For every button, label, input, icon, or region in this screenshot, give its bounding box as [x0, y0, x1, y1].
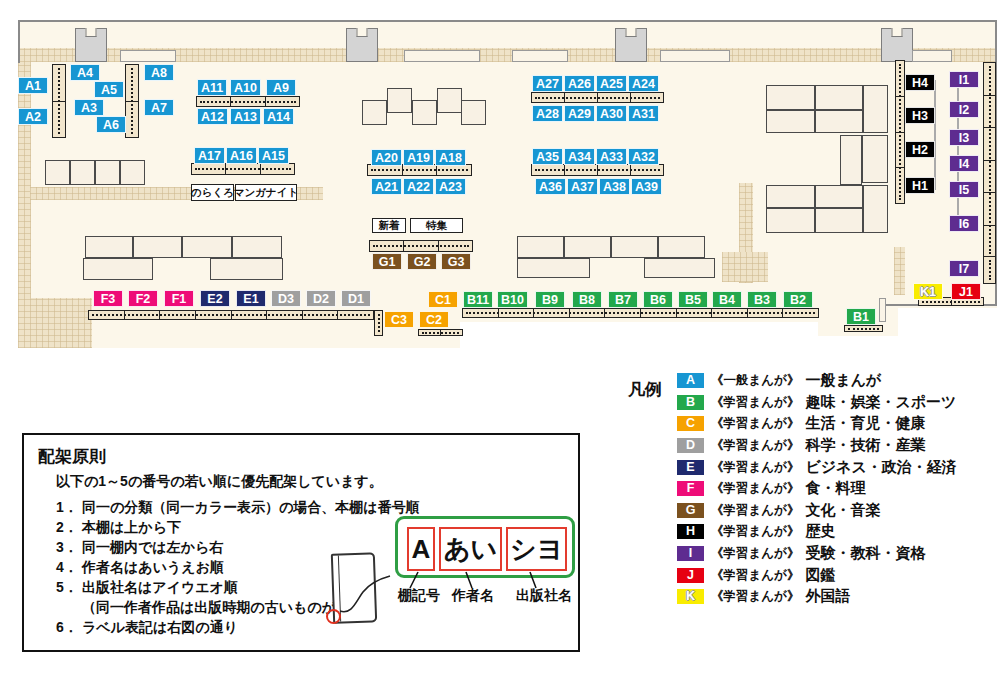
- area-label-manga-night: マンガナイト: [235, 184, 297, 201]
- legend-type: 《学習まんが》: [711, 437, 799, 454]
- legend-category: 食・料理: [805, 479, 865, 498]
- spine-label-diagram: A あい シヨ: [395, 516, 575, 578]
- bookcase: [462, 308, 819, 318]
- table-block: [461, 100, 486, 125]
- shelf-label-H3: H3: [905, 107, 935, 124]
- hatched-floor-zone: [18, 298, 92, 348]
- table-block: [815, 85, 863, 110]
- table-block: [362, 100, 387, 125]
- legend-chip-E: E: [677, 460, 704, 475]
- legend-chip-H: H: [677, 524, 704, 539]
- hatched-floor-zone: [894, 247, 905, 295]
- shelf-label-D3: D3: [271, 290, 301, 307]
- legend-type: 《学習まんが》: [711, 567, 799, 584]
- legend-category: 図鑑: [805, 566, 835, 585]
- shelf-label-B11: B11: [463, 291, 493, 308]
- table-block: [83, 258, 153, 280]
- pillar: [346, 28, 378, 62]
- legend-item-K: K《学習まんが》外国語: [677, 589, 957, 605]
- legend-item-B: B《学習まんが》趣味・娯楽・スポーツ: [677, 395, 957, 411]
- legend-item-E: E《学習まんが》ビジネス・政治・経済: [677, 459, 957, 475]
- shelf-label-I7: I7: [949, 260, 979, 277]
- table-block: [45, 160, 70, 185]
- legend-category: 文化・音楽: [805, 501, 880, 520]
- shelf-label-B6: B6: [643, 291, 673, 308]
- shelf-label-B4: B4: [712, 291, 742, 308]
- bookcase: [88, 310, 374, 320]
- shelf-label-A24: A24: [628, 75, 659, 92]
- shelf-label-B5: B5: [678, 291, 708, 308]
- pillar: [615, 28, 647, 62]
- caption-shelf-code: 棚記号: [398, 587, 440, 605]
- shelf-label-I3: I3: [949, 129, 979, 146]
- legend-chip-I: I: [677, 546, 704, 561]
- area-label-new-arrivals: 新着: [372, 218, 406, 233]
- shelf-label-A12: A12: [197, 108, 228, 125]
- table-block: [412, 100, 437, 125]
- shelf-label-H2: H2: [905, 141, 935, 158]
- legend-item-H: H《学習まんが》歴史: [677, 524, 957, 540]
- shelf-label-D2: D2: [306, 290, 336, 307]
- table-block: [863, 185, 888, 233]
- table-block: [232, 236, 282, 258]
- table-block: [95, 160, 120, 185]
- table-block: [437, 88, 462, 113]
- legend-type: 《学習まんが》: [711, 588, 799, 605]
- legend-chip-B: B: [677, 395, 704, 410]
- legend-item-D: D《学習まんが》科学・技術・産業: [677, 438, 957, 454]
- wall-table: [879, 298, 886, 322]
- shelf-label-A30: A30: [596, 105, 627, 122]
- shelf-label-I2: I2: [949, 101, 979, 118]
- shelf-label-B10: B10: [497, 291, 528, 308]
- pillar: [881, 28, 913, 62]
- shelf-label-F2: F2: [128, 290, 158, 307]
- table-block: [611, 236, 658, 258]
- list-number: [56, 597, 82, 617]
- shelving-principles-panel: 配架原則 以下の1～5の番号の若い順に優先配架しています。 1．同一の分類（同一…: [22, 433, 580, 652]
- shelf-label-C2: C2: [419, 311, 449, 328]
- shelf-label-A35: A35: [532, 148, 563, 165]
- shelf-label-K1: K1: [913, 283, 943, 300]
- table-block: [387, 88, 412, 113]
- bookcase: [983, 62, 996, 258]
- legend-chip-A: A: [677, 373, 704, 388]
- wall-line: [18, 20, 997, 22]
- shelf-label-A28: A28: [532, 105, 563, 122]
- bookcase: [531, 92, 664, 103]
- legend-category: ビジネス・政治・経済: [805, 458, 956, 477]
- table-block: [815, 110, 863, 133]
- list-text: （同一作者作品は出版時期の古いものが先）: [82, 597, 364, 617]
- shelf-label-A27: A27: [532, 75, 563, 92]
- legend-item-A: A《一般まんが》一般まんが: [677, 373, 957, 389]
- list-text: 同一棚内では左から右: [82, 537, 223, 557]
- bookcase: [369, 240, 473, 252]
- table-block: [815, 208, 863, 233]
- floor-map-page: A1A2A4A5A3A6A8A7A11A10A9A12A13A14A17A16A…: [0, 0, 1000, 700]
- shelf-label-A38: A38: [599, 178, 630, 195]
- shelf-label-C1: C1: [428, 291, 458, 308]
- shelf-label-A18: A18: [435, 149, 466, 166]
- legend-rows: A《一般まんが》一般まんがB《学習まんが》趣味・娯楽・スポーツC《学習まんが》生…: [677, 373, 957, 611]
- wall-table: [120, 50, 176, 62]
- table-block: [766, 208, 815, 233]
- principles-title: 配架原則: [38, 445, 106, 468]
- hatched-floor-zone: [722, 252, 768, 282]
- shelf-label-E1: E1: [236, 290, 266, 307]
- legend-type: 《学習まんが》: [711, 459, 799, 476]
- wall-table: [660, 50, 730, 62]
- table-block: [840, 135, 862, 185]
- list-text: 同一の分類（同一カラー表示）の場合、本棚は番号順: [82, 497, 420, 517]
- shelf-label-A1: A1: [18, 77, 48, 94]
- shelf-label-B2: B2: [783, 291, 813, 308]
- list-number: 1．: [56, 497, 82, 517]
- legend-item-J: J《学習まんが》図鑑: [677, 567, 957, 583]
- shelf-label-I5: I5: [949, 181, 979, 198]
- legend-item-G: G《学習まんが》文化・音楽: [677, 503, 957, 519]
- shelf-label-A26: A26: [564, 75, 595, 92]
- shelf-label-G1: G1: [372, 253, 402, 270]
- bookcase: [374, 310, 383, 336]
- table-block: [658, 236, 705, 258]
- shelf-label-J1: J1: [951, 283, 981, 300]
- legend-item-I: I《学習まんが》受験・教科・資格: [677, 546, 957, 562]
- legend-type: 《学習まんが》: [711, 394, 799, 411]
- caption-publisher: 出版社名: [516, 587, 572, 605]
- table-block: [120, 160, 145, 185]
- legend-type: 《学習まんが》: [711, 523, 799, 540]
- shelf-label-A29: A29: [564, 105, 595, 122]
- shelf-label-B7: B7: [608, 291, 638, 308]
- list-number: 2．: [56, 517, 82, 537]
- bookcase: [418, 329, 463, 336]
- shelf-label-I6: I6: [949, 215, 979, 232]
- table-block: [564, 236, 611, 258]
- shelf-label-A4: A4: [70, 64, 100, 81]
- shelf-label-B3: B3: [747, 291, 777, 308]
- table-block: [766, 85, 815, 110]
- legend-category: 外国語: [805, 587, 850, 606]
- legend-category: 一般まんが: [805, 371, 881, 390]
- shelf-label-A15: A15: [258, 147, 289, 164]
- shelf-label-A7: A7: [144, 99, 174, 116]
- area-label-norakuro: のらくろ: [191, 184, 234, 201]
- shelf-label-A33: A33: [596, 148, 627, 165]
- table-block: [815, 185, 863, 208]
- shelf-label-A20: A20: [371, 149, 402, 166]
- legend-chip-D: D: [677, 438, 704, 453]
- shelf-label-A3: A3: [74, 99, 104, 116]
- table-block: [766, 110, 815, 133]
- shelf-label-D1: D1: [341, 290, 371, 307]
- legend-type: 《学習まんが》: [711, 480, 799, 497]
- shelf-label-C3: C3: [384, 311, 414, 328]
- shelf-label-G2: G2: [407, 253, 437, 270]
- wall-table: [404, 50, 480, 62]
- bookcase: [844, 325, 883, 332]
- legend-chip-K: K: [677, 589, 704, 604]
- shelf-label-F3: F3: [93, 290, 123, 307]
- legend-type: 《学習まんが》: [711, 415, 799, 432]
- bookcase: [983, 256, 996, 284]
- shelf-label-H1: H1: [905, 177, 935, 194]
- shelf-label-B8: B8: [572, 291, 602, 308]
- table-block: [766, 185, 815, 208]
- list-text: 作者名はあいうえお順: [82, 557, 224, 577]
- list-number: 3．: [56, 537, 82, 557]
- shelf-label-I1: I1: [949, 71, 979, 88]
- shelf-label-E2: E2: [200, 290, 230, 307]
- shelf-label-A37: A37: [567, 178, 598, 195]
- list-number: 5．: [56, 577, 82, 597]
- bookcase: [196, 96, 300, 107]
- shelf-label-A17: A17: [194, 147, 225, 164]
- legend-chip-C: C: [677, 416, 704, 431]
- shelf-label-A31: A31: [628, 105, 659, 122]
- legend-category: 受験・教科・資格: [805, 544, 925, 563]
- table-block: [863, 85, 888, 133]
- table-block: [862, 135, 888, 183]
- legend-chip-G: G: [677, 503, 704, 518]
- shelf-label-A14: A14: [263, 108, 294, 125]
- shelf-label-A32: A32: [628, 148, 659, 165]
- legend-item-C: C《学習まんが》生活・育児・健康: [677, 416, 957, 432]
- shelf-label-A39: A39: [631, 178, 662, 195]
- shelf-label-A8: A8: [144, 64, 174, 81]
- wall-table: [912, 50, 952, 62]
- shelf-label-H4: H4: [905, 74, 935, 91]
- bookcase: [895, 60, 905, 204]
- bookcase: [125, 64, 139, 138]
- shelf-label-A9: A9: [266, 79, 296, 96]
- legend-category: 歴史: [805, 522, 835, 541]
- label-position-ring: [326, 609, 341, 624]
- principles-list-item: 2．本棚は上から下: [56, 517, 420, 537]
- pillar: [75, 28, 107, 62]
- legend-item-F: F《学習まんが》食・料理: [677, 481, 957, 497]
- legend-category: 生活・育児・健康: [805, 414, 925, 433]
- legend-type: 《一般まんが》: [711, 372, 799, 389]
- list-number: 4．: [56, 557, 82, 577]
- shelf-label-I4: I4: [949, 155, 979, 172]
- wall-line: [18, 21, 20, 63]
- legend-category: 趣味・娯楽・スポーツ: [805, 393, 956, 412]
- list-number: 6．: [56, 617, 82, 637]
- legend-chip-J: J: [677, 568, 704, 583]
- shelf-label-A2: A2: [18, 108, 48, 125]
- shelf-label-G3: G3: [441, 253, 471, 270]
- shelf-label-A36: A36: [535, 178, 566, 195]
- shelf-label-F1: F1: [164, 290, 194, 307]
- table-block: [182, 236, 232, 258]
- shelf-label-A13: A13: [230, 108, 261, 125]
- shelf-guide-line: [934, 80, 936, 190]
- label-author: あい: [439, 527, 502, 571]
- legend-type: 《学習まんが》: [711, 545, 799, 562]
- shelf-label-A6: A6: [96, 116, 126, 133]
- shelf-label-A11: A11: [197, 79, 227, 96]
- table-block: [133, 236, 182, 258]
- shelf-label-A34: A34: [564, 148, 595, 165]
- list-text: 出版社名はアイウエオ順: [82, 577, 238, 597]
- shelf-label-A19: A19: [403, 149, 434, 166]
- label-shelf-code: A: [407, 527, 435, 571]
- list-text: ラベル表記は右図の通り: [82, 617, 238, 637]
- bookcase: [52, 64, 66, 138]
- wall-table: [512, 50, 568, 62]
- shelf-label-A22: A22: [403, 178, 434, 195]
- shelf-label-B1: B1: [846, 308, 876, 325]
- shelf-label-A21: A21: [371, 178, 402, 195]
- table-block: [517, 258, 590, 278]
- area-label-special-feature: 特集: [410, 218, 463, 233]
- shelf-label-A16: A16: [226, 147, 257, 164]
- table-block: [85, 236, 133, 258]
- table-block: [210, 258, 283, 280]
- legend-category: 科学・技術・産業: [805, 436, 925, 455]
- legend-type: 《学習まんが》: [711, 502, 799, 519]
- legend-chip-F: F: [677, 481, 704, 496]
- legend-title: 凡例: [628, 378, 662, 401]
- table-block: [70, 160, 95, 185]
- shelf-label-B9: B9: [535, 291, 565, 308]
- table-block: [517, 236, 564, 258]
- caption-author: 作者名: [452, 587, 494, 605]
- principles-list-item: 1．同一の分類（同一カラー表示）の場合、本棚は番号順: [56, 497, 420, 517]
- table-block: [644, 258, 715, 278]
- shelf-label-A5: A5: [94, 81, 124, 98]
- list-text: 本棚は上から下: [82, 517, 181, 537]
- principles-intro: 以下の1～5の番号の若い順に優先配架しています。: [56, 473, 383, 491]
- shelf-label-A23: A23: [435, 178, 466, 195]
- shelf-label-A10: A10: [230, 79, 261, 96]
- label-publisher: シヨ: [506, 527, 567, 571]
- shelf-label-A25: A25: [596, 75, 627, 92]
